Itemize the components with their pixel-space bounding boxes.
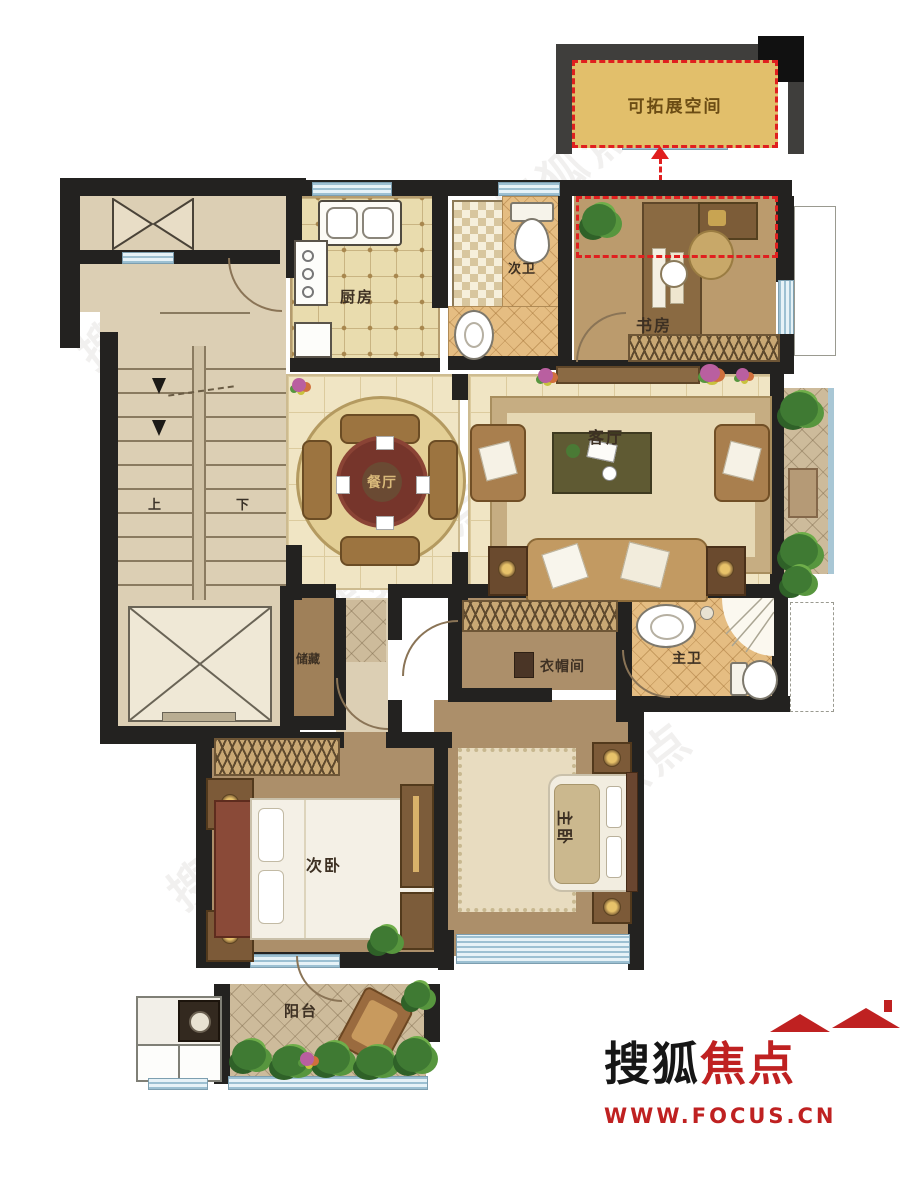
annotation-frame-left	[556, 44, 572, 154]
flower-icon	[736, 368, 749, 381]
room-label-kitchen: 厨房	[340, 286, 374, 307]
wall	[776, 196, 794, 282]
window	[148, 1078, 208, 1090]
equipment-platform	[794, 206, 836, 356]
window	[228, 1076, 428, 1090]
wall	[60, 178, 80, 348]
plant-icon	[782, 566, 812, 594]
wall	[558, 196, 572, 370]
flower-icon	[300, 1052, 314, 1066]
wall	[438, 930, 454, 970]
wall	[434, 744, 448, 956]
study-cabinet	[628, 334, 780, 362]
stairs-arrow-icon	[152, 420, 166, 436]
dining-chair	[302, 440, 332, 520]
wall	[100, 332, 118, 744]
plant-icon	[314, 1042, 350, 1074]
wall	[432, 196, 448, 308]
plant-icon	[780, 534, 818, 568]
entry-double-door-icon	[112, 198, 194, 250]
logo-url: WWW.FOCUS.CN	[604, 1104, 894, 1128]
console-table	[556, 366, 700, 384]
stairs-arrow-icon	[152, 378, 166, 394]
window-pane	[136, 1044, 180, 1082]
wardrobe-icon	[462, 600, 618, 632]
flower-icon	[538, 368, 553, 383]
room-label-dining: 餐厅	[367, 472, 397, 492]
nightstand	[592, 742, 632, 774]
logo-text-black: 搜狐	[604, 1028, 700, 1094]
lamp-icon	[498, 560, 516, 578]
dining-chair	[428, 440, 458, 520]
wardrobe-icon	[214, 738, 340, 776]
bed-headboard	[214, 800, 254, 938]
room-label-bath-master: 主卫	[672, 648, 702, 668]
window	[498, 182, 560, 196]
toilet-icon	[742, 660, 778, 700]
room-label-bedroom-secondary: 次卧	[306, 852, 342, 876]
door-arc	[402, 620, 458, 676]
wall	[628, 930, 644, 970]
flower-icon	[292, 378, 306, 392]
logo-chimney-icon	[884, 1000, 892, 1012]
stairs-landing-line	[160, 312, 250, 314]
nightstand	[592, 890, 632, 924]
wall	[334, 598, 346, 730]
plant-icon	[232, 1040, 266, 1070]
focus-logo: 搜狐 焦点 WWW.FOCUS.CN	[604, 1028, 894, 1118]
room-label-storage: 储藏	[296, 650, 320, 667]
wall	[388, 598, 402, 640]
room-label-balcony: 阳台	[284, 1000, 318, 1021]
armchair-icon	[470, 424, 526, 502]
elevator-door	[162, 712, 236, 722]
wall	[280, 598, 294, 730]
wall	[290, 358, 440, 372]
wall	[60, 178, 306, 196]
expandable-space-box: 可拓展空间	[572, 60, 778, 148]
armchair-icon	[714, 424, 770, 502]
room-label-bedroom-master: 主卧	[554, 810, 578, 846]
side-terrace-railing	[828, 388, 834, 574]
dresser	[400, 784, 434, 888]
drain-icon	[700, 606, 714, 620]
cloakroom-cabinet	[514, 652, 534, 678]
window-pane	[178, 1044, 222, 1082]
wall	[772, 596, 788, 712]
wall	[448, 688, 552, 702]
bench	[788, 468, 818, 518]
plant-icon	[356, 1046, 394, 1076]
window	[778, 280, 794, 338]
window	[456, 934, 630, 964]
sink-icon	[454, 310, 494, 360]
red-arrow-up-icon	[651, 146, 669, 159]
sink-icon	[636, 604, 696, 648]
equipment-platform	[790, 602, 834, 712]
lamp-icon	[716, 560, 734, 578]
expandable-zone-outline	[576, 196, 778, 258]
kitchen-sink-icon	[318, 200, 402, 246]
wall	[452, 374, 468, 400]
stove-icon	[294, 240, 328, 306]
bed-headboard	[626, 772, 638, 892]
wall	[280, 584, 336, 598]
wall	[280, 716, 346, 730]
plant-icon	[370, 926, 398, 952]
dining-chair	[340, 536, 420, 566]
logo-roof-icon	[770, 1014, 830, 1032]
window	[122, 252, 174, 264]
expandable-space-label: 可拓展空间	[628, 92, 723, 117]
dining-table-icon: 餐厅	[336, 436, 428, 528]
room-label-bath-secondary: 次卫	[508, 258, 536, 277]
stairs-rail	[192, 346, 206, 600]
tea-table-icon	[660, 260, 688, 288]
washer-icon	[178, 1000, 220, 1042]
room-label-living: 客厅	[588, 424, 624, 448]
shower-icon	[722, 598, 774, 656]
elevator-icon	[128, 606, 272, 722]
plant-icon	[780, 392, 818, 426]
stairs-up-label: 上	[148, 494, 161, 513]
shower-area-secondary	[452, 200, 504, 308]
flower-icon	[700, 364, 720, 382]
kitchen-counter	[294, 322, 332, 358]
dresser	[400, 892, 434, 950]
plant-icon	[404, 982, 430, 1008]
sofa-icon	[526, 538, 708, 602]
plant-icon	[396, 1038, 432, 1072]
stairs-down-label: 下	[236, 494, 249, 513]
room-label-cloakroom: 衣帽间	[540, 656, 585, 676]
logo-text-red: 焦点	[700, 1028, 796, 1094]
window	[312, 182, 392, 196]
room-label-study: 书房	[636, 312, 672, 336]
